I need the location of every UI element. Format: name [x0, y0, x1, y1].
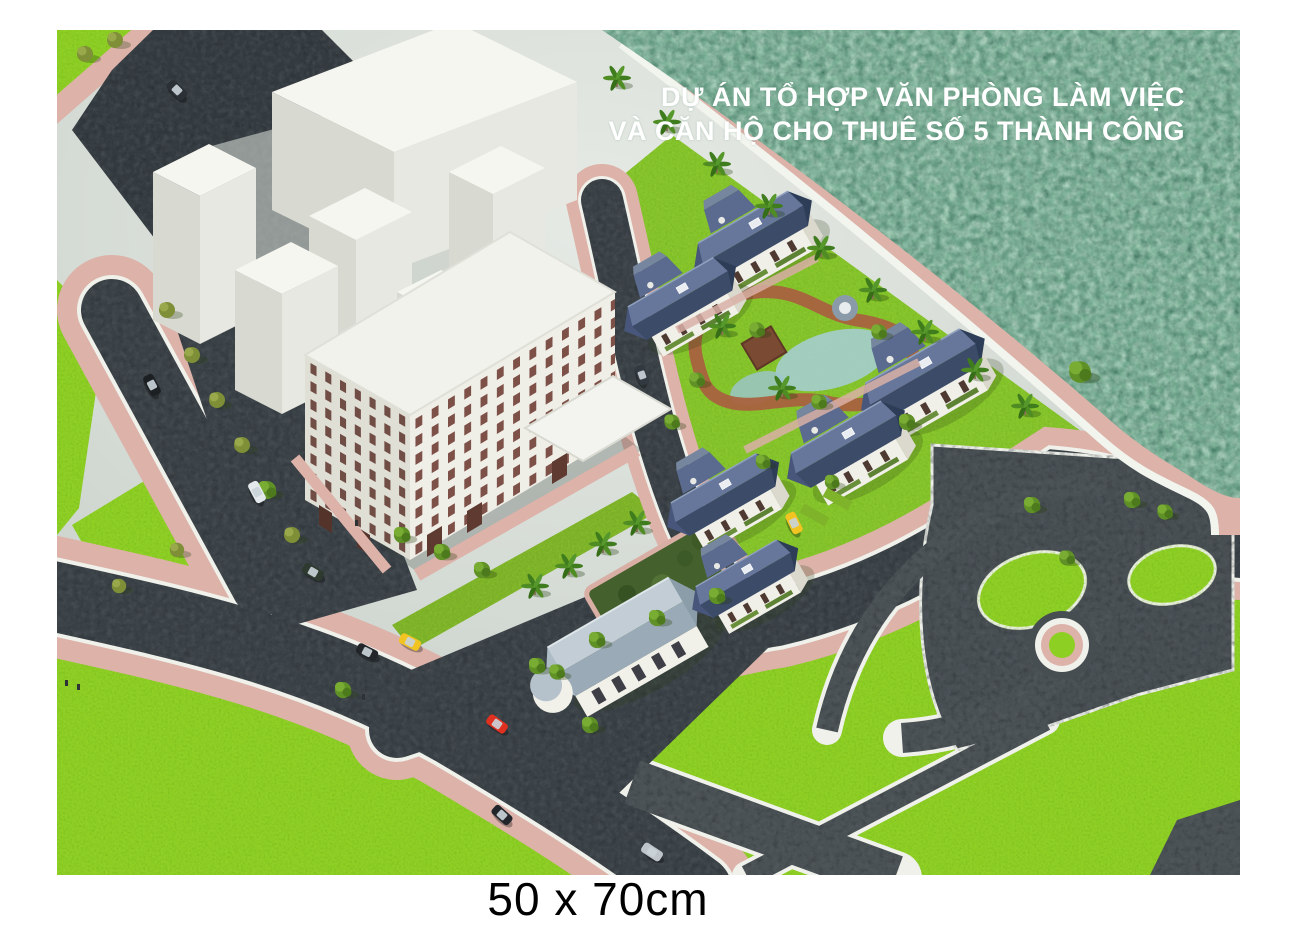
- masterplan-scene: [57, 30, 1240, 875]
- architectural-rendering: DỰ ÁN TỔ HỢP VĂN PHÒNG LÀM VIỆC VÀ CĂN H…: [57, 30, 1240, 875]
- project-title: DỰ ÁN TỔ HỢP VĂN PHÒNG LÀM VIỆC VÀ CĂN H…: [608, 80, 1185, 148]
- project-title-line1: DỰ ÁN TỔ HỢP VĂN PHÒNG LÀM VIỆC: [608, 80, 1185, 114]
- project-title-line2: VÀ CĂN HỘ CHO THUÊ SỐ 5 THÀNH CÔNG: [608, 114, 1185, 148]
- size-caption: 50 x 70cm: [0, 872, 1196, 926]
- poster-page: DỰ ÁN TỔ HỢP VĂN PHÒNG LÀM VIỆC VÀ CĂN H…: [0, 0, 1299, 945]
